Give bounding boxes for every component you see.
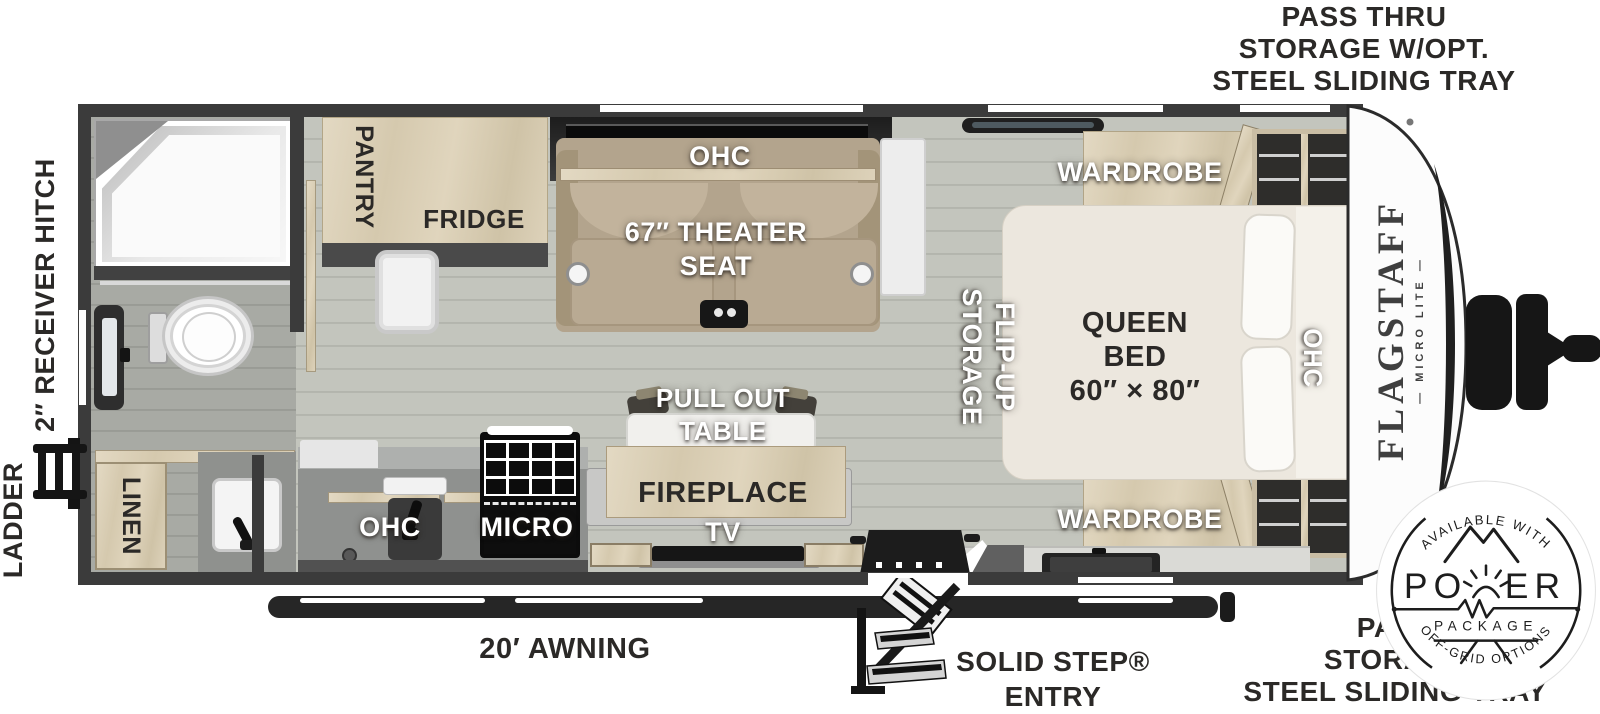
sofa-cupholder-right xyxy=(850,262,874,286)
sofa-console-cup2 xyxy=(727,308,736,317)
linen-label: LINEN xyxy=(118,460,144,572)
bed-line2: BED xyxy=(1010,340,1260,374)
bath-divider-top xyxy=(290,117,304,332)
shower xyxy=(94,119,294,269)
flip-line1: FLIP-UP xyxy=(988,288,1021,425)
range-grates xyxy=(484,440,576,496)
hitch-jack xyxy=(1516,294,1548,410)
awning-text: 20′ AWNING xyxy=(479,633,650,665)
theater-line1: 67″ THEATER xyxy=(585,216,847,250)
brand-logo: FLAGSTAFF — MICRO LITE — xyxy=(1366,180,1430,480)
receiver-hitch-label: 2″ RECEIVER HITCH xyxy=(30,140,60,450)
closet-rod xyxy=(1310,154,1350,157)
badge-power-left: PO xyxy=(1404,566,1467,606)
pass-thru-top-line1: PASS THRU xyxy=(1138,1,1590,33)
micro-text: MICRO xyxy=(481,512,574,542)
awning-highlight-2 xyxy=(515,598,703,603)
badge-package: PACKAGE xyxy=(1434,619,1538,634)
wardrobe-top-text: WARDROBE xyxy=(1057,157,1222,187)
brand-name: FLAGSTAFF xyxy=(1370,199,1413,461)
solid-step-label: SOLID STEP® ENTRY xyxy=(913,644,1193,714)
sofa-ohc-label: OHC xyxy=(640,141,800,171)
bed-ohc-text: OHC xyxy=(1297,328,1326,388)
flip-up-storage-label: FLIP-UP STORAGE xyxy=(955,272,1021,442)
micro-label: MICRO xyxy=(452,512,602,542)
closet-rod xyxy=(1310,178,1350,181)
table-line2: TABLE xyxy=(598,415,848,448)
entry-door-handle-left xyxy=(850,536,866,544)
utility-basin xyxy=(375,250,439,334)
shelf-divider xyxy=(1301,479,1308,553)
bedroom-vent-glass xyxy=(972,122,1094,128)
pass-thru-top-line3: STEEL SLIDING TRAY xyxy=(1138,65,1590,97)
wardrobe-bottom-label: WARDROBE xyxy=(1010,504,1270,534)
pass-thru-top-label: PASS THRU STORAGE W/OPT. STEEL SLIDING T… xyxy=(1138,1,1590,97)
bed-line1: QUEEN xyxy=(1010,306,1260,340)
queen-bed-label: QUEEN BED 60″ × 80″ xyxy=(1010,306,1260,409)
pass-thru-top-line2: STORAGE W/OPT. xyxy=(1138,33,1590,65)
brand-sub: — MICRO LITE — xyxy=(1414,256,1426,404)
flip-up-lines: FLIP-UP STORAGE xyxy=(955,288,1021,425)
tv-text: TV xyxy=(705,517,741,547)
window-left xyxy=(79,310,86,405)
shelf-divider xyxy=(1301,134,1308,208)
kitchen-ohc-label: OHC xyxy=(320,512,460,542)
sofa-ohc-text: OHC xyxy=(689,141,751,171)
tv-screen xyxy=(652,546,804,562)
hitch-ball-mount xyxy=(1562,335,1600,362)
cap-screw xyxy=(1407,119,1414,126)
solid-step-line2: ENTRY xyxy=(913,679,1193,714)
fridge-label: FRIDGE xyxy=(394,205,554,234)
window-knob xyxy=(1092,548,1106,554)
bath-window-glass xyxy=(102,318,117,396)
bath-window-latch xyxy=(120,348,130,362)
window-top-1 xyxy=(600,105,863,112)
fridge-text: FRIDGE xyxy=(423,204,525,234)
window-top-2 xyxy=(988,105,1163,112)
fireplace-text: FIREPLACE xyxy=(638,477,808,509)
sofa-console-cup xyxy=(714,308,723,317)
closet-rod xyxy=(1310,499,1350,502)
shower-ledge xyxy=(94,266,296,280)
closet-rod xyxy=(1310,523,1350,526)
kitchen-ohc-text: OHC xyxy=(359,512,421,542)
theater-label: 67″ THEATER SEAT xyxy=(585,216,847,284)
solid-step-line1: SOLID STEP® xyxy=(913,644,1193,679)
range-handle xyxy=(487,426,573,435)
shower-ledge-trim xyxy=(100,281,296,285)
awning-highlight-3 xyxy=(1078,598,1173,603)
tv-label: TV xyxy=(598,517,848,547)
closet-rod xyxy=(1259,499,1299,502)
entry-door-dots xyxy=(876,562,956,568)
pantry-door-edge xyxy=(306,180,316,372)
sofa-end-panel xyxy=(880,138,926,296)
receiver-hitch-text: 2″ RECEIVER HITCH xyxy=(30,158,60,432)
bedroom-counter-window-glass xyxy=(1050,557,1152,572)
entry-door-handle-right xyxy=(964,534,980,542)
tv-base xyxy=(638,561,820,568)
linen-text: LINEN xyxy=(117,477,145,555)
fireplace-label: FIREPLACE xyxy=(598,477,848,509)
window-bottom-1 xyxy=(1078,577,1173,583)
awning-highlight-1 xyxy=(300,598,485,603)
pull-out-table-label: PULL OUT TABLE xyxy=(598,382,848,447)
floorplan-canvas: LINEN PANTRY FRIDGE OHC 67″ THEATER SEAT xyxy=(0,0,1600,713)
awning-label: 20′ AWNING xyxy=(420,633,710,665)
badge-power-right: ER xyxy=(1505,566,1566,606)
wardrobe-bottom-text: WARDROBE xyxy=(1057,504,1222,534)
pantry-label: PANTRY xyxy=(351,114,377,240)
theater-line2: SEAT xyxy=(585,250,847,284)
table-line1: PULL OUT xyxy=(598,382,848,415)
bed-ohc-label: OHC xyxy=(1298,318,1326,398)
wardrobe-top-label: WARDROBE xyxy=(1010,157,1270,187)
bath-divider-bottom xyxy=(252,455,264,573)
flip-line2: STORAGE xyxy=(955,288,988,425)
bed-line3: 60″ × 80″ xyxy=(1010,374,1260,408)
kitchen-end-panel xyxy=(300,440,378,468)
pantry-text: PANTRY xyxy=(350,125,378,229)
kitchen-sink-cover xyxy=(383,477,447,495)
toilet-seat xyxy=(182,312,236,362)
power-package-badge: AVAILABLE WITH PO ER PACKAGE OFF-GRID OP… xyxy=(1372,475,1600,706)
hitch-tongue xyxy=(1466,295,1512,410)
window-top-3 xyxy=(1240,105,1330,112)
sofa-console xyxy=(700,300,748,328)
ladder-label: LADDER xyxy=(0,440,27,600)
ladder-text: LADDER xyxy=(0,462,28,578)
